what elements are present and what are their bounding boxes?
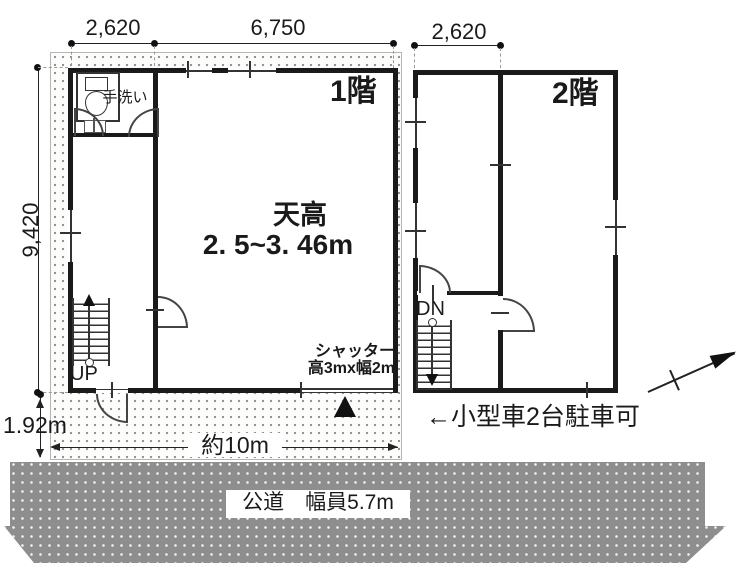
north-arrow-head [710, 345, 739, 368]
dim-ext-5 [500, 48, 501, 68]
dim-line-top-1f [72, 43, 394, 44]
dim-width-left: 2,620 [70, 16, 156, 39]
floor2-right-window-tick [605, 226, 626, 228]
frontage-arrow-left [50, 443, 60, 451]
parking-note: ←小型車2台駐車可 [426, 404, 640, 430]
handwash-label: 手洗い [98, 90, 152, 106]
parking-note-text: ←小型車2台駐車可 [426, 403, 640, 431]
floor2-title: 2階 [552, 78, 599, 110]
ceiling-height-value: 2. 5~3. 46m [180, 230, 376, 259]
dim-frontage: 約10m [188, 433, 282, 457]
down-arrow-icon [426, 374, 438, 386]
floor2-title-text: 2階 [552, 77, 599, 110]
dim-setback: 1.92m [3, 413, 67, 437]
dim-width-left-text: 2,620 [85, 15, 140, 40]
floor2-bottom-tick [586, 382, 588, 398]
shutter-note-line1: シャッター [280, 344, 395, 361]
setback-arrow-up [36, 399, 44, 408]
floor2-interior-wall-vertical [498, 70, 503, 393]
dim-dot-8 [37, 391, 44, 398]
dim-width-right-text: 2,620 [431, 19, 486, 44]
north-arrow-cross-tick [669, 370, 680, 391]
dim-height-left: 9,420 [19, 178, 45, 282]
floor1-stairs [72, 298, 110, 366]
dim-height-left-text: 9,420 [18, 202, 43, 257]
floor2-left-window-2-tick [405, 230, 426, 232]
floor1-left-window-tick [60, 232, 81, 234]
floor1-left-window-line [70, 210, 72, 262]
dim-ext-6 [38, 67, 68, 68]
floor2-left-window-1-tick [405, 121, 426, 123]
dim-line-top-2f [415, 45, 501, 46]
dn-label-text: DN [416, 298, 445, 320]
floor1-top-window-1-line [186, 70, 212, 72]
floor2-interior-wall-tick [490, 164, 511, 166]
dim-ext-2 [154, 46, 155, 66]
road-label: 公道 幅員5.7m [226, 490, 410, 518]
north-arrow-icon [648, 352, 736, 392]
road-label-text: 公道 幅員5.7m [242, 491, 394, 514]
up-label-text: UP [70, 363, 98, 385]
dim-ext-3 [393, 46, 394, 68]
dim-ext-4 [414, 48, 415, 68]
shutter-note: シャッター 高3mx幅2m [280, 344, 395, 378]
floor-plan-canvas: 公道 幅員5.7m UP 1階 [0, 0, 750, 563]
ceiling-title-text: 天高 [273, 200, 327, 230]
dim-ext-1 [71, 46, 72, 66]
floor1-title: 1階 [330, 76, 377, 108]
frontage-arrow-right [388, 443, 398, 451]
floor1-stairs-up-label: UP [70, 364, 98, 385]
up-arrow-icon [83, 294, 95, 306]
floor1-stairs-centerline [88, 304, 90, 362]
floor2-wall-top [413, 70, 618, 75]
floor1-top-window-tick-1 [187, 61, 189, 78]
setback-arrow-down [36, 449, 44, 458]
floor2-left-window-1-line [415, 98, 417, 148]
dim-frontage-text: 約10m [201, 432, 269, 458]
dim-width-center: 6,750 [226, 16, 330, 39]
ceiling-value-text: 2. 5~3. 46m [203, 229, 353, 260]
floor1-title-text: 1階 [330, 75, 377, 108]
floor1-shutter-line-bottom [300, 392, 393, 394]
floor1-top-window-2-line [228, 70, 276, 72]
floor2-stairs-centerline [431, 326, 433, 378]
floor2-stairs-down-label: DN [416, 299, 445, 320]
shutter-note-line2: 高3mx幅2m [280, 361, 395, 378]
entrance-triangle-icon [334, 396, 356, 417]
dim-width-right: 2,620 [415, 20, 503, 43]
floor1-shutter-line-top [300, 388, 393, 390]
floor2-room-door-tick [491, 312, 509, 314]
floor1-room-door-tick [146, 309, 164, 311]
floor1-shutter-tick [300, 382, 302, 398]
ceiling-height-title: 天高 [235, 201, 365, 229]
handwash-text: 手洗い [102, 89, 147, 106]
dim-width-center-text: 6,750 [250, 15, 305, 40]
dim-setback-text: 1.92m [3, 412, 67, 438]
floor1-top-window-tick-2 [249, 61, 251, 78]
